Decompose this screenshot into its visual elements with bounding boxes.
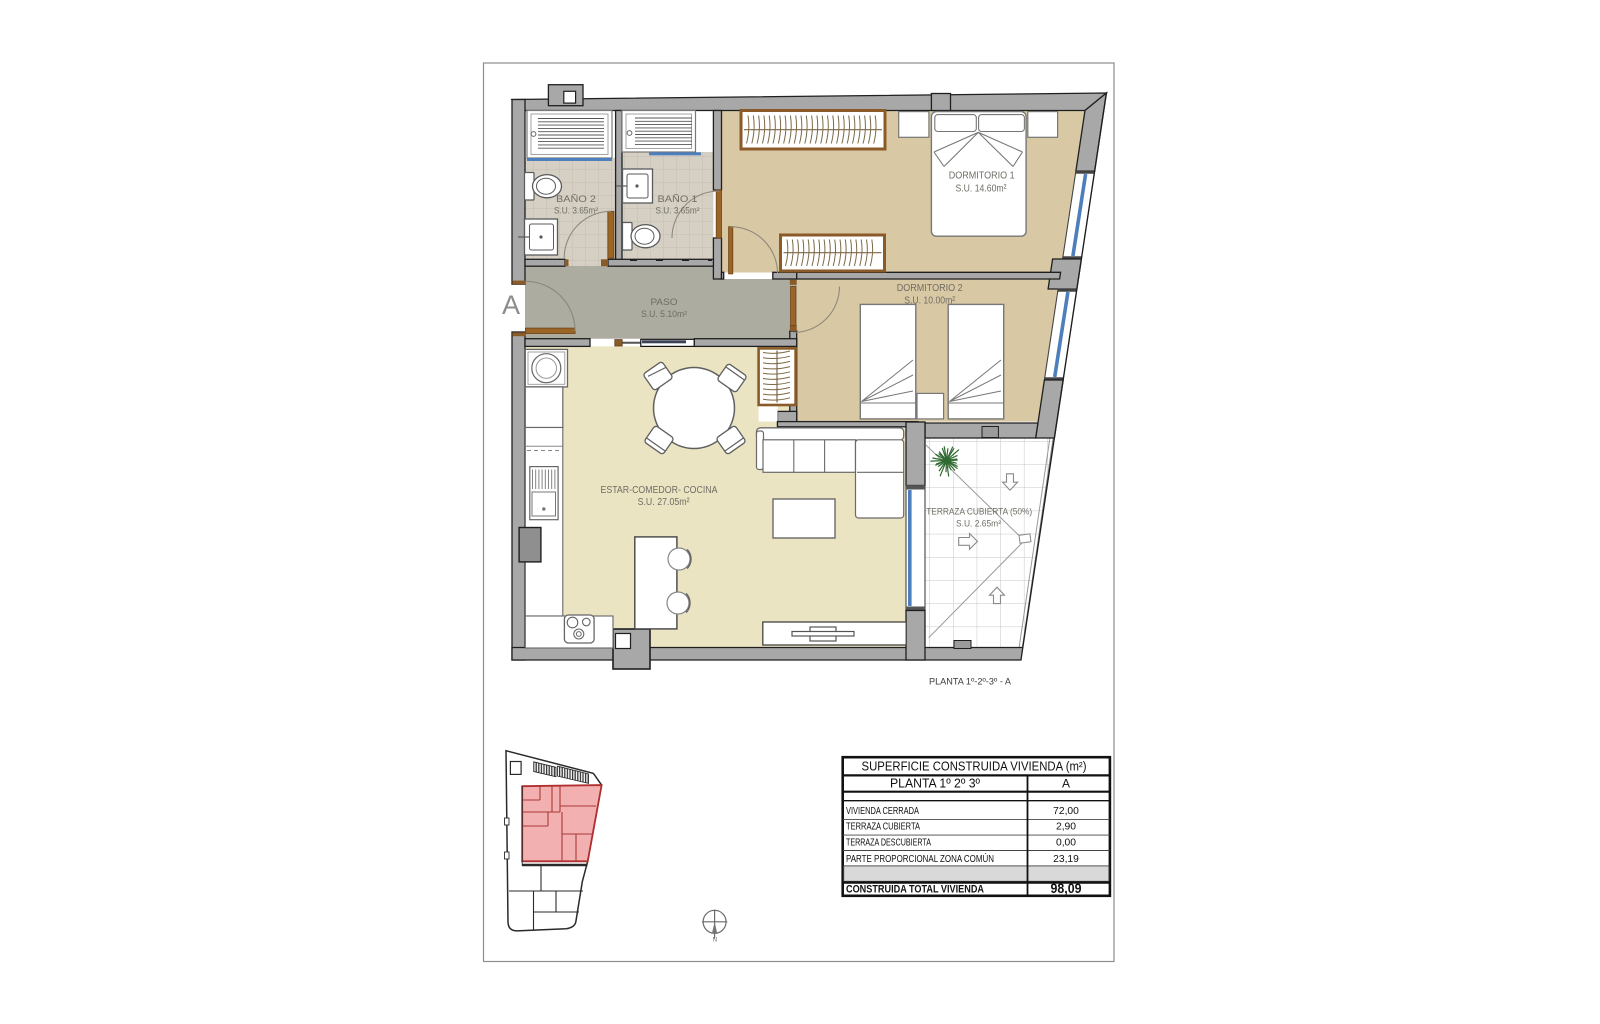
svg-text:S.U. 5.10m²: S.U. 5.10m² <box>641 309 687 319</box>
svg-text:PLANTA 1º 2º 3º: PLANTA 1º 2º 3º <box>890 777 980 791</box>
svg-text:CONSTRUIDA TOTAL VIVIENDA: CONSTRUIDA TOTAL VIVIENDA <box>846 883 984 895</box>
svg-text:A: A <box>1062 777 1070 791</box>
svg-text:S.U. 10.00m²: S.U. 10.00m² <box>904 296 956 307</box>
svg-text:N: N <box>712 937 717 944</box>
svg-text:0,00: 0,00 <box>1056 837 1076 848</box>
svg-text:TERRAZA DESCUBIERTA: TERRAZA DESCUBIERTA <box>846 837 931 848</box>
svg-text:98,09: 98,09 <box>1051 881 1082 896</box>
svg-text:ESTAR-COMEDOR- COCINA: ESTAR-COMEDOR- COCINA <box>601 485 718 496</box>
svg-text:DORMITORIO 2: DORMITORIO 2 <box>897 283 963 294</box>
svg-text:PARTE PROPORCIONAL ZONA COMÚN: PARTE PROPORCIONAL ZONA COMÚN <box>846 852 994 865</box>
svg-text:S.U. 14.60m²: S.U. 14.60m² <box>956 184 1008 195</box>
svg-text:TERRAZA CUBIERTA: TERRAZA CUBIERTA <box>846 822 920 833</box>
svg-text:S.U. 3.65m²: S.U. 3.65m² <box>554 206 598 216</box>
svg-text:BAÑO 2: BAÑO 2 <box>556 194 596 204</box>
svg-text:VIVIENDA CERRADA: VIVIENDA CERRADA <box>846 806 919 817</box>
svg-text:PLANTA 1º-2º-3º - A: PLANTA 1º-2º-3º - A <box>929 677 1012 688</box>
svg-text:S.U. 27.05m²: S.U. 27.05m² <box>638 497 691 508</box>
svg-text:A: A <box>502 290 520 320</box>
svg-text:BAÑO 1: BAÑO 1 <box>658 194 698 204</box>
svg-text:2,90: 2,90 <box>1056 822 1076 833</box>
svg-text:SUPERFICIE CONSTRUIDA VIVIEND: SUPERFICIE CONSTRUIDA VIVIENDA (m²) <box>862 760 1087 774</box>
svg-text:S.U. 3.65m²: S.U. 3.65m² <box>656 206 700 216</box>
svg-text:S.U. 2.65m²: S.U. 2.65m² <box>956 519 1001 529</box>
svg-text:23,19: 23,19 <box>1053 854 1079 865</box>
svg-text:72,00: 72,00 <box>1053 806 1079 817</box>
svg-text:PASO: PASO <box>651 297 678 307</box>
svg-text:TERRAZA CUBIERTA (50%): TERRAZA CUBIERTA (50%) <box>926 507 1032 517</box>
svg-text:DORMITORIO 1: DORMITORIO 1 <box>949 171 1015 182</box>
